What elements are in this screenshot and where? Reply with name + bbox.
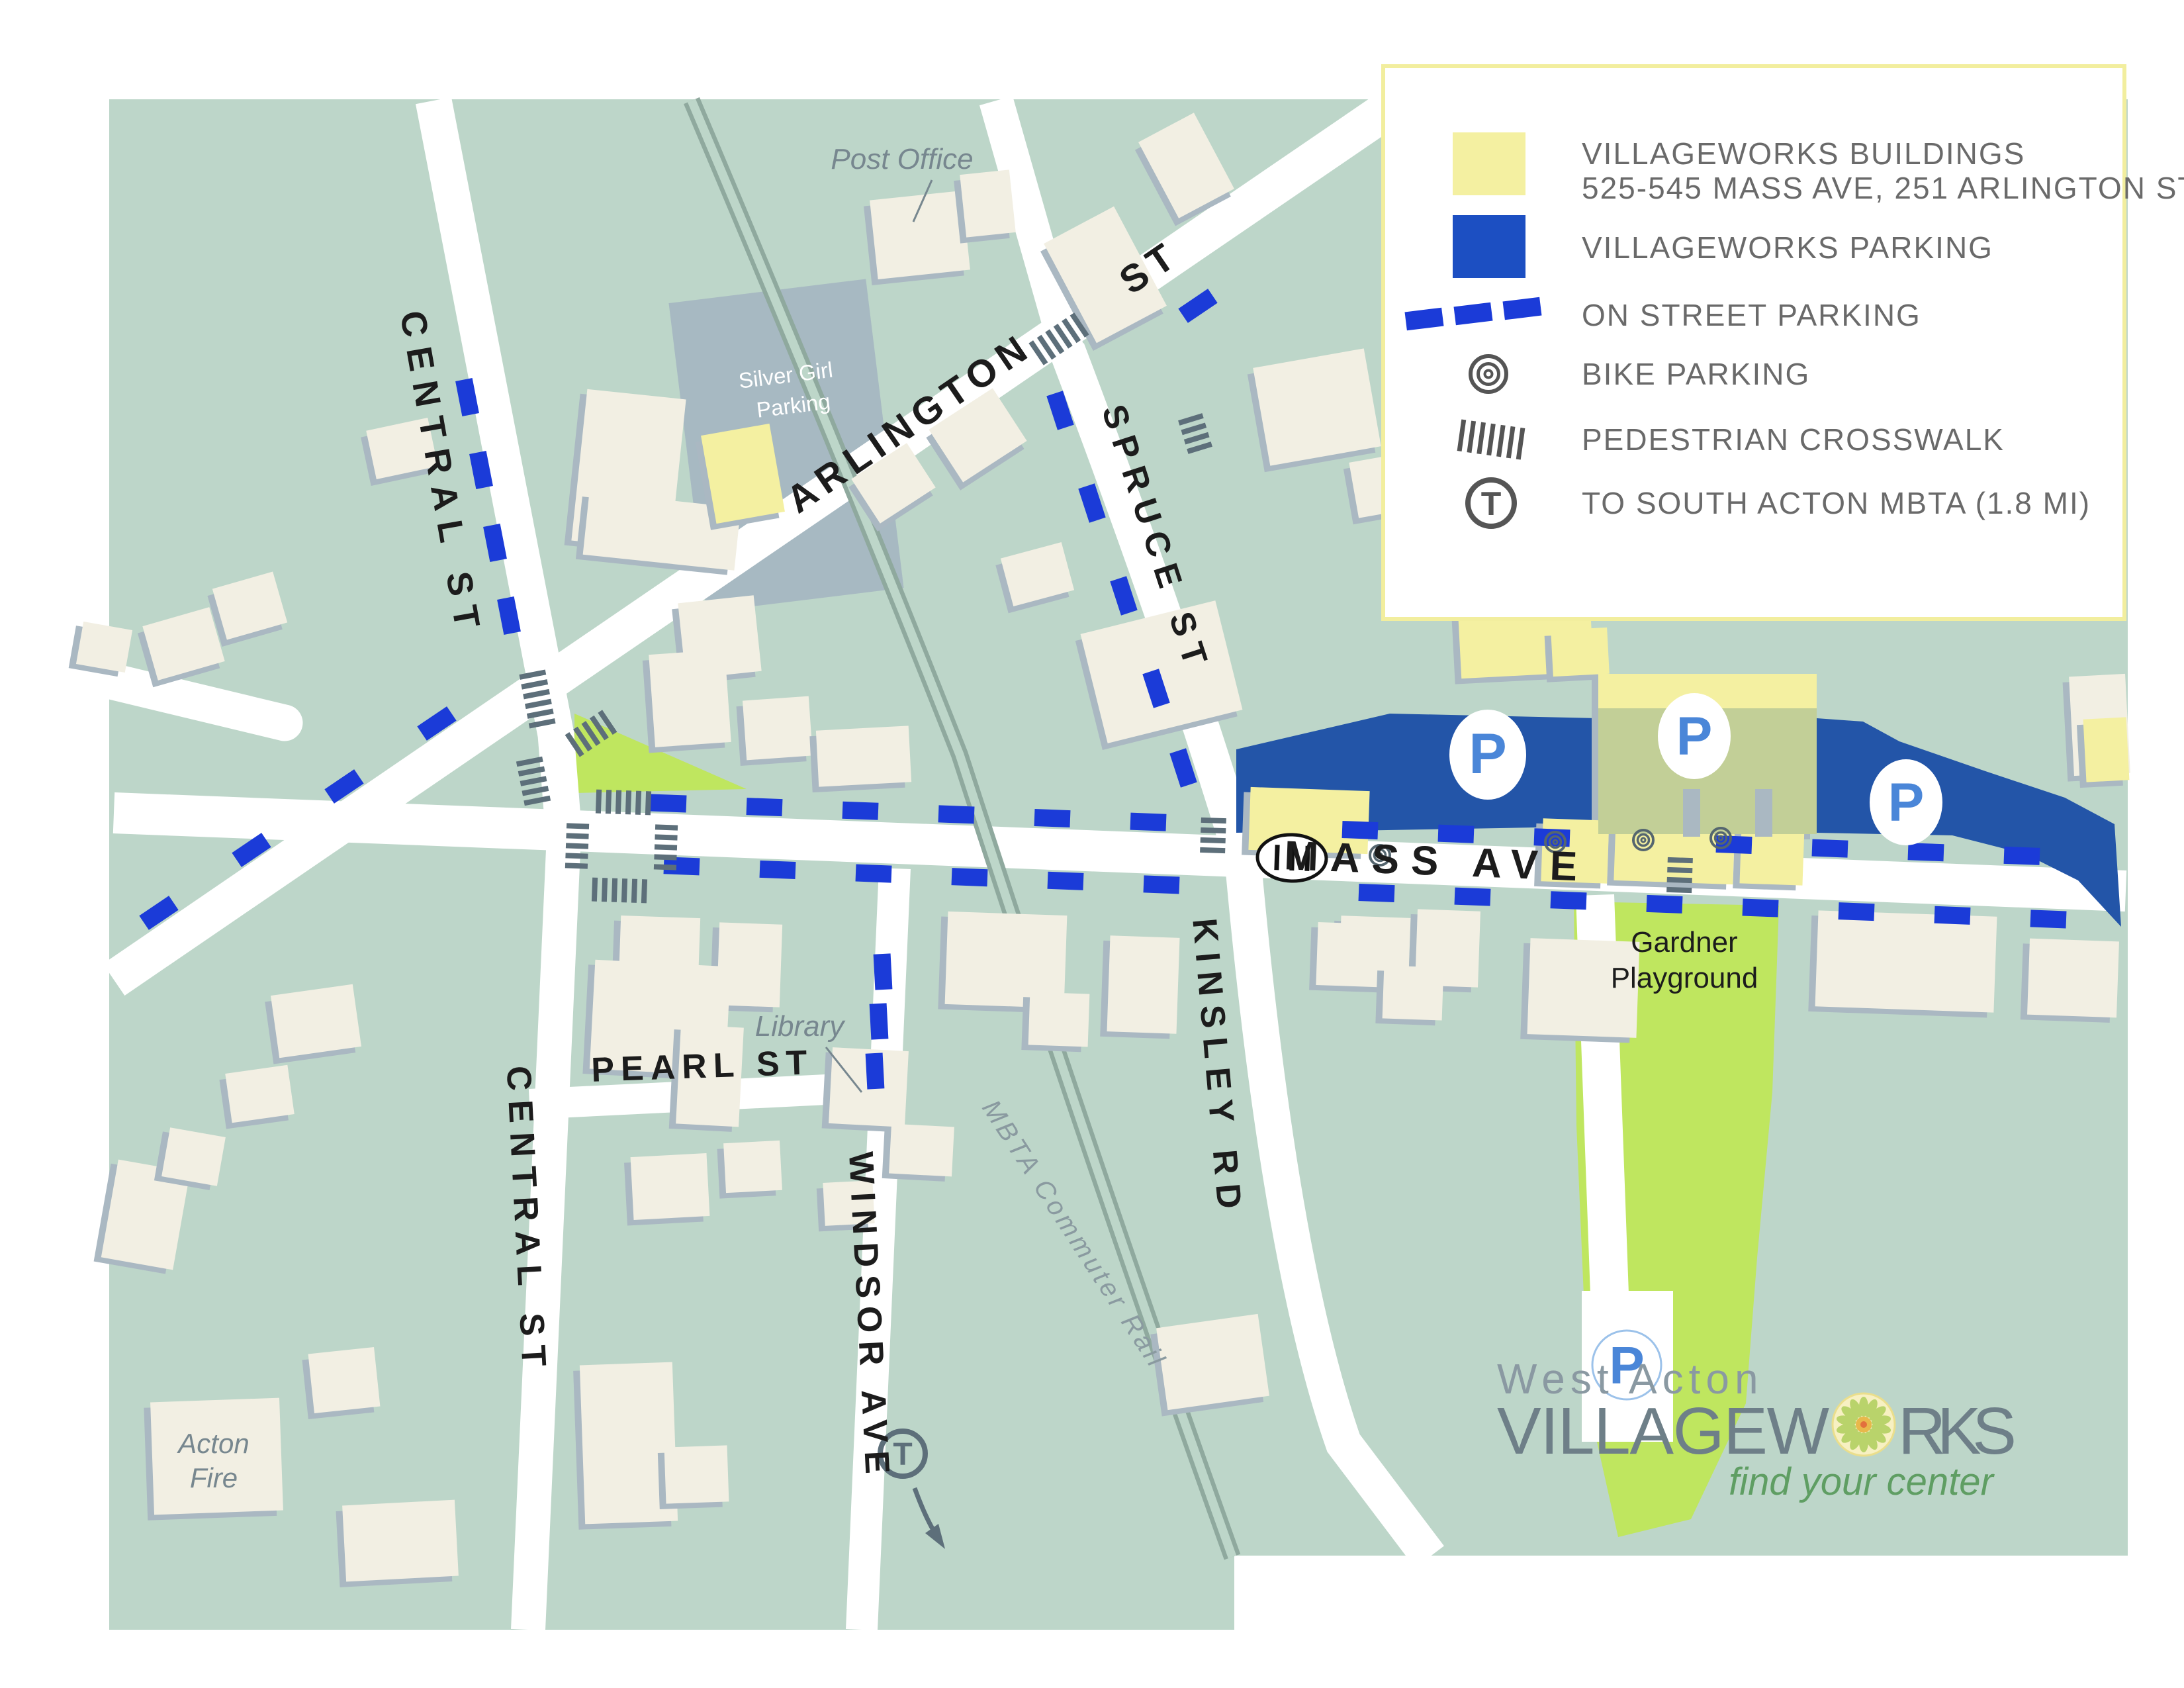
legend-item-4-label: PEDESTRIAN CROSSWALK [1582, 422, 2005, 457]
building [265, 984, 361, 1064]
building [1808, 910, 1997, 1017]
svg-text:P: P [1469, 722, 1506, 786]
logo-name-part1: VILLAGEW [1497, 1394, 1831, 1468]
building [737, 696, 813, 766]
building-pillar [1683, 789, 1700, 837]
building [69, 622, 132, 677]
on-street-parking-dash [1144, 875, 1180, 894]
svg-text:P: P [1888, 773, 1925, 833]
building [219, 1065, 294, 1129]
on-street-parking-dash [874, 953, 893, 990]
legend-item-0-label: VILLAGEWORKS BUILDINGS [1582, 136, 2025, 171]
on-street-parking-dash [1359, 884, 1395, 902]
on-street-parking-dash [1048, 872, 1084, 890]
on-street-parking-dash [1455, 888, 1491, 906]
on-street-parking-dash [760, 861, 796, 879]
on-street-parking-dash [1934, 906, 1971, 925]
villageworks-map: P P P P T CENTRAL ST ARLINGTON ST SPRUCE… [0, 0, 2184, 1688]
label-gardner-1: Gardner [1631, 926, 1737, 959]
label-post-office: Post Office [831, 143, 973, 175]
on-street-parking-dash [651, 794, 687, 812]
parking-badge-west: P [1449, 710, 1526, 800]
building [864, 191, 970, 285]
on-street-parking-dash [1908, 843, 1944, 861]
label-acton-fire-1: Acton [176, 1428, 249, 1459]
on-street-parking-dash [856, 865, 892, 883]
villageworks-building [696, 424, 785, 530]
on-street-parking-dash [2004, 847, 2040, 865]
building [717, 1141, 782, 1199]
building [822, 1047, 909, 1132]
building-pillar [1755, 789, 1772, 837]
on-street-parking-dash [1839, 902, 1875, 921]
on-street-parking-dash [2030, 910, 2067, 928]
label-gardner-2: Playground [1611, 962, 1758, 994]
building [1375, 965, 1443, 1025]
legend-item-1-label: VILLAGEWORKS PARKING [1582, 230, 1993, 265]
villageworks-parking-swatch [1453, 215, 1525, 278]
on-street-parking-dash [1647, 895, 1683, 914]
on-street-parking-dash [842, 802, 879, 820]
map-page: P P P P T CENTRAL ST ARLINGTON ST SPRUCE… [0, 0, 2184, 1688]
svg-text:T: T [1481, 485, 1502, 522]
legend-item-5-label: TO SOUTH ACTON MBTA (1.8 MI) [1582, 486, 2091, 520]
mandala-icon [1833, 1393, 1895, 1456]
building [954, 169, 1016, 243]
villageworks-building [2077, 717, 2129, 788]
building [658, 1445, 729, 1509]
logo-name-part2: RKS [1898, 1394, 2019, 1468]
logo-tagline: find your center [1729, 1460, 1995, 1503]
on-street-parking-dash [1743, 899, 1779, 917]
building [809, 726, 911, 792]
legend-item-3-label: BIKE PARKING [1582, 357, 1810, 391]
building [154, 1127, 226, 1190]
legend-item-0-sublabel: 525-545 MASS AVE, 251 ARLINGTON ST [1582, 171, 2184, 205]
on-street-parking-dash [870, 1003, 889, 1039]
parking-badge-deck: P [1658, 693, 1731, 779]
building [882, 1124, 954, 1182]
building [1150, 1314, 1269, 1417]
on-street-parking-dash [1034, 809, 1071, 827]
building [1248, 348, 1381, 472]
building [1100, 935, 1179, 1039]
label-acton-fire-2: Fire [190, 1462, 238, 1493]
label-library: Library [755, 1010, 846, 1043]
legend: VILLAGEWORKS BUILDINGS 525-545 MASS AVE,… [1383, 66, 2184, 619]
on-street-parking-dash [938, 805, 975, 823]
building [302, 1347, 380, 1419]
building [144, 1398, 283, 1521]
building [1021, 992, 1089, 1052]
on-street-parking-dash [1551, 891, 1587, 910]
legend-item-2-label: ON STREET PARKING [1582, 298, 1921, 332]
on-street-parking-dash [866, 1053, 885, 1089]
on-street-parking-dash [952, 868, 988, 886]
on-street-parking-dash [1130, 813, 1167, 831]
label-pearl-st: PEARL ST [590, 1043, 814, 1090]
building [2021, 939, 2119, 1023]
svg-text:P: P [1676, 706, 1713, 767]
parking-badge-east: P [1870, 759, 1942, 845]
villageworks-buildings-swatch [1453, 132, 1525, 195]
on-street-parking-dash [1812, 839, 1848, 858]
building [624, 1153, 709, 1225]
building [336, 1500, 459, 1587]
map-background-lower-left [109, 1549, 1234, 1630]
building [643, 649, 731, 753]
on-street-parking-dash [747, 798, 783, 816]
